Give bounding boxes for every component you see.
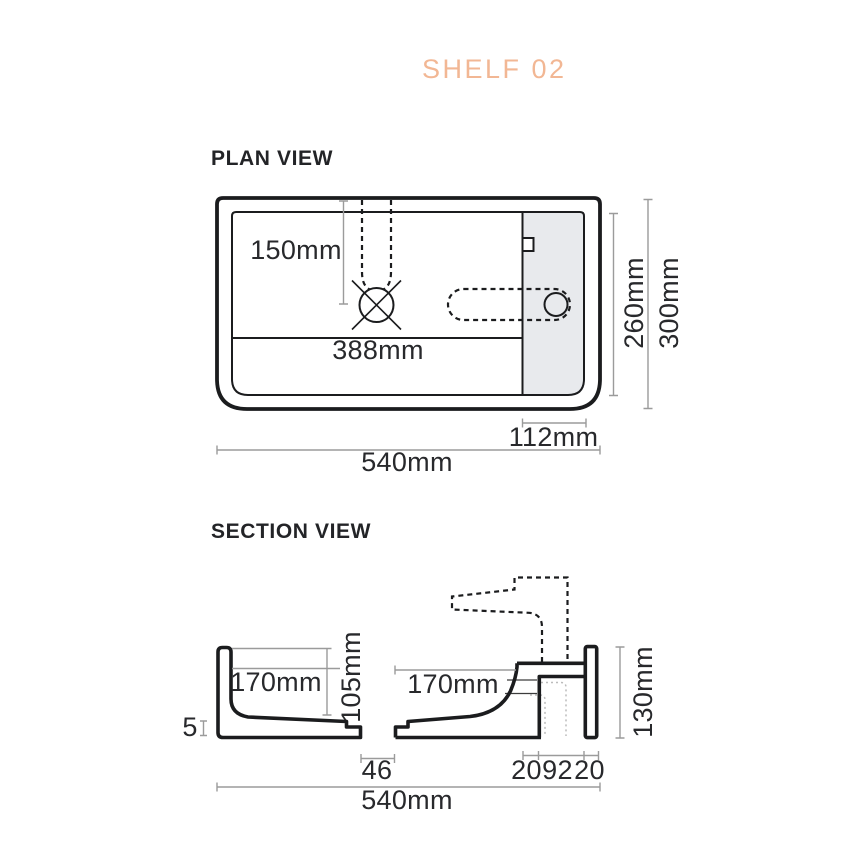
- section-dim-170-right: 170mm: [395, 666, 516, 700]
- section-dim-46-label: 46: [362, 755, 393, 785]
- plan-dim-388: 388mm: [332, 335, 424, 365]
- plan-dim-150-label: 150mm: [250, 235, 342, 265]
- section-drawing: 170mm 105mm 170mm 130mm 5 46: [182, 578, 658, 816]
- plan-dim-300: 300mm: [644, 200, 685, 409]
- section-tap-dashed: [452, 578, 568, 663]
- plan-dim-112-label: 112mm: [509, 422, 599, 452]
- plan-drain-symbol: [352, 281, 401, 330]
- section-dim-46: 46: [361, 754, 395, 785]
- section-dim-105-label: 105mm: [336, 631, 366, 723]
- section-dim-92-label: 92: [542, 755, 573, 785]
- section-dim-540-label: 540mm: [361, 785, 453, 815]
- plan-dim-388-label: 388mm: [332, 335, 424, 365]
- plan-dim-300-label: 300mm: [654, 257, 684, 349]
- section-dim-20b-label: 20: [574, 755, 605, 785]
- plan-dim-260-label: 260mm: [619, 257, 649, 349]
- section-dim-170-right-label: 170mm: [407, 669, 499, 699]
- section-dim-170-left-label: 170mm: [230, 667, 322, 697]
- plan-dim-150: 150mm: [250, 201, 348, 304]
- section-dim-5-label: 5: [182, 712, 197, 742]
- section-bracket: [539, 677, 586, 738]
- section-dim-20-92-20: 20 92 20: [511, 751, 605, 785]
- spec-sheet: SHELF 02 PLAN VIEW SECTION VIEW: [0, 0, 860, 860]
- plan-dim-540-label: 540mm: [361, 447, 453, 477]
- section-dim-5: 5: [182, 712, 207, 742]
- plan-drawing: 150mm 388mm 260mm 300mm 112mm 540mm: [217, 198, 684, 477]
- section-dim-20a-label: 20: [511, 755, 542, 785]
- section-dim-170-left: 170mm: [230, 667, 340, 697]
- plan-dim-540: 540mm: [217, 446, 600, 478]
- section-waste-pipe-dotted: [530, 683, 566, 737]
- plan-overflow-square: [523, 238, 534, 251]
- technical-drawing: 150mm 388mm 260mm 300mm 112mm 540mm: [0, 0, 860, 860]
- section-right-wall: [585, 647, 596, 738]
- section-dim-130: 130mm: [616, 646, 659, 738]
- plan-dim-112: 112mm: [509, 419, 599, 453]
- plan-tap-spout-dashed: [362, 200, 391, 290]
- section-dim-540: 540mm: [217, 783, 600, 816]
- section-dim-130-label: 130mm: [628, 646, 658, 738]
- plan-dim-260: 260mm: [609, 214, 649, 396]
